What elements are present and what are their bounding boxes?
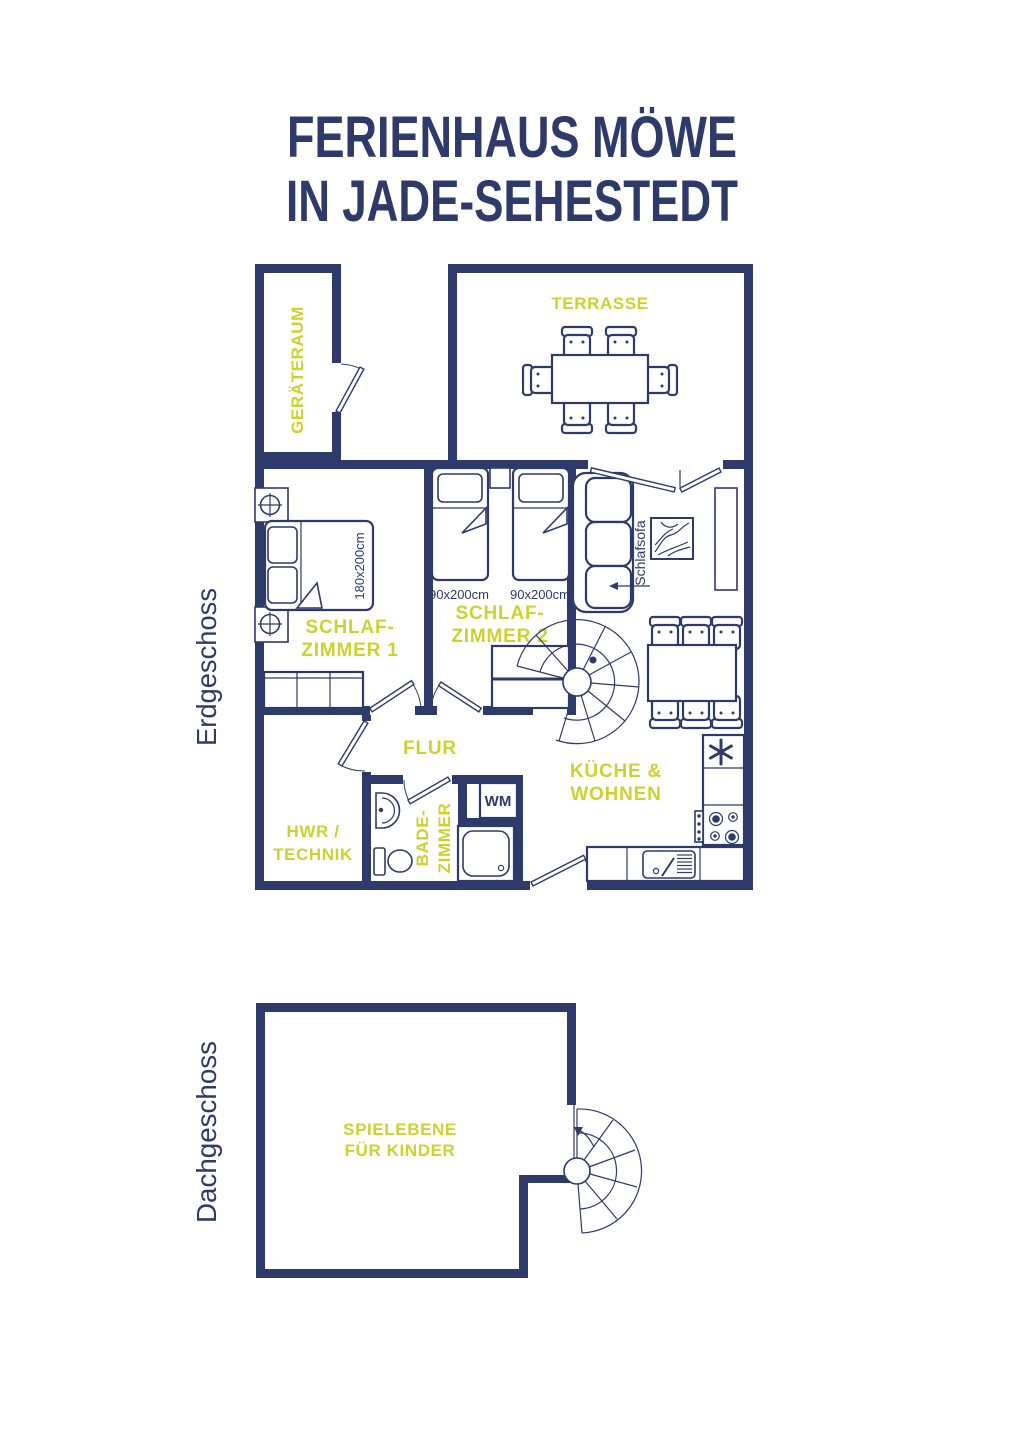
pillow — [438, 474, 482, 502]
door-entrance — [531, 855, 590, 886]
pillow — [268, 567, 297, 603]
wardrobe — [264, 672, 363, 708]
rug — [651, 518, 693, 559]
door-schlafzimmer1 — [370, 681, 421, 712]
chair — [562, 401, 592, 433]
title-line-1: FERIENHAUS MÖWE — [287, 105, 737, 170]
nightstand — [490, 468, 510, 488]
toilet-icon — [374, 848, 412, 875]
ground-floor-label: Erdgeschoss — [191, 588, 222, 746]
room-label-geraeteraum: GERÄTERAUM — [288, 306, 307, 434]
spiral-staircase-attic — [564, 1105, 642, 1233]
room-label-terrasse: TERRASSE — [551, 294, 648, 313]
title-line-2: IN JADE-SEHESTEDT — [286, 169, 738, 234]
room-label-hwr-line1: HWR / — [286, 822, 339, 841]
ground-floor-plan: GERÄTERAUM TERRASSE — [255, 264, 753, 890]
floorplan-page: FERIENHAUS MÖWE IN JADE-SEHESTEDT Erdges… — [0, 0, 1018, 1440]
kitchen-units — [587, 735, 744, 881]
room-label-kueche-line2: WOHNEN — [570, 784, 661, 805]
living-area-furniture: Schlafsofa — [573, 473, 742, 728]
sideboard — [715, 488, 737, 590]
door-schlafzimmer2 — [431, 682, 481, 712]
room-label-spielebene-line2: FÜR KINDER — [345, 1141, 456, 1160]
room-label-kueche-line1: KÜCHE & — [570, 761, 662, 782]
door-bathroom — [404, 777, 450, 804]
attic-floor-label: Dachgeschoss — [191, 1041, 222, 1223]
chair — [645, 365, 677, 395]
pillow — [519, 474, 563, 502]
title-block: FERIENHAUS MÖWE IN JADE-SEHESTEDT — [286, 105, 738, 234]
room-label-schlafzimmer1-line1: SCHLAF- — [306, 617, 395, 638]
floorplan-canvas: FERIENHAUS MÖWE IN JADE-SEHESTEDT Erdges… — [0, 0, 1018, 1440]
sofa-cushion — [586, 522, 631, 566]
oven-handle-icon — [695, 811, 703, 842]
dining-table — [648, 645, 736, 701]
chair — [523, 365, 555, 395]
terrace-table — [552, 355, 648, 403]
terrace-dining-set — [523, 327, 677, 433]
sink-icon — [643, 851, 695, 878]
pillow — [268, 527, 297, 563]
room-label-bad-line1: BADE- — [413, 810, 432, 867]
bed-size-label: 90x200cm — [510, 587, 570, 602]
room-label-hwr-line2: TECHNIK — [273, 845, 353, 864]
attic-floor-plan: SPIELEBENE FÜR KINDER — [256, 1003, 642, 1278]
schlafzimmer1-furniture: 180x200cm — [255, 488, 373, 708]
bed-size-label: 180x200cm — [352, 532, 367, 599]
chair — [606, 401, 636, 433]
room-label-schlafzimmer1-line2: ZIMMER 1 — [301, 640, 398, 661]
washing-machine-label: WM — [485, 793, 512, 810]
door-hwr — [338, 721, 368, 771]
washing-machine: WM — [480, 783, 517, 818]
door-geraeteraum — [336, 364, 364, 413]
shower — [458, 826, 514, 881]
sofa-cushion — [586, 566, 631, 608]
room-label-schlafzimmer2-line1: SCHLAF- — [456, 603, 545, 624]
schlafsofa-annotation: Schlafsofa — [632, 520, 648, 586]
bed-size-label: 90x200cm — [429, 587, 489, 602]
washbasin-icon — [376, 793, 400, 828]
sofa-cushion — [586, 478, 631, 522]
room-label-flur: FLUR — [403, 738, 457, 759]
room-label-bad-line2: ZIMMER — [435, 803, 454, 874]
room-label-spielebene-line1: SPIELEBENE — [343, 1120, 457, 1139]
